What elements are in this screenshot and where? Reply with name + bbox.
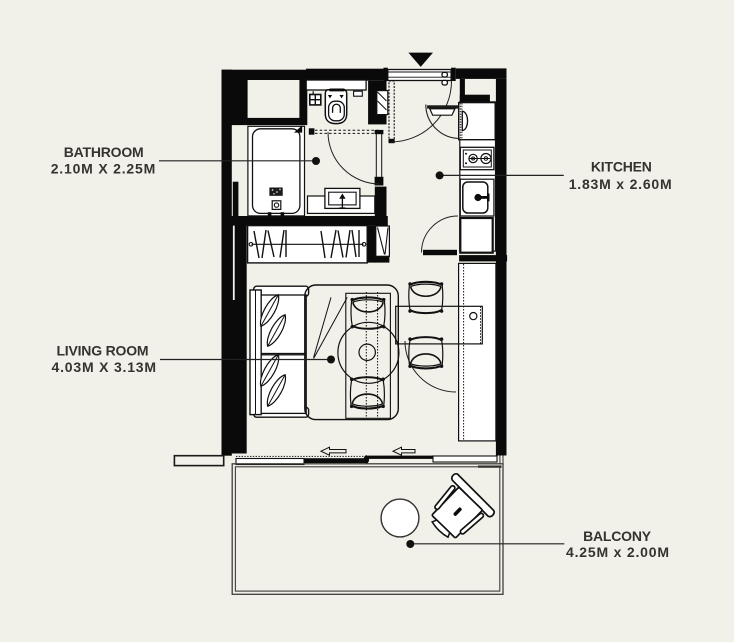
svg-text:LIVING ROOM: LIVING ROOM xyxy=(56,343,148,359)
svg-text:4.03M X 3.13M: 4.03M X 3.13M xyxy=(52,359,157,375)
svg-text:BALCONY: BALCONY xyxy=(583,528,652,544)
svg-text:1.83M x 2.60M: 1.83M x 2.60M xyxy=(569,176,673,192)
svg-text:4.25M x 2.00M: 4.25M x 2.00M xyxy=(566,544,670,560)
svg-text:BATHROOM: BATHROOM xyxy=(64,144,144,160)
svg-text:KITCHEN: KITCHEN xyxy=(591,159,652,175)
svg-text:2.10M X 2.25M: 2.10M X 2.25M xyxy=(51,161,156,177)
